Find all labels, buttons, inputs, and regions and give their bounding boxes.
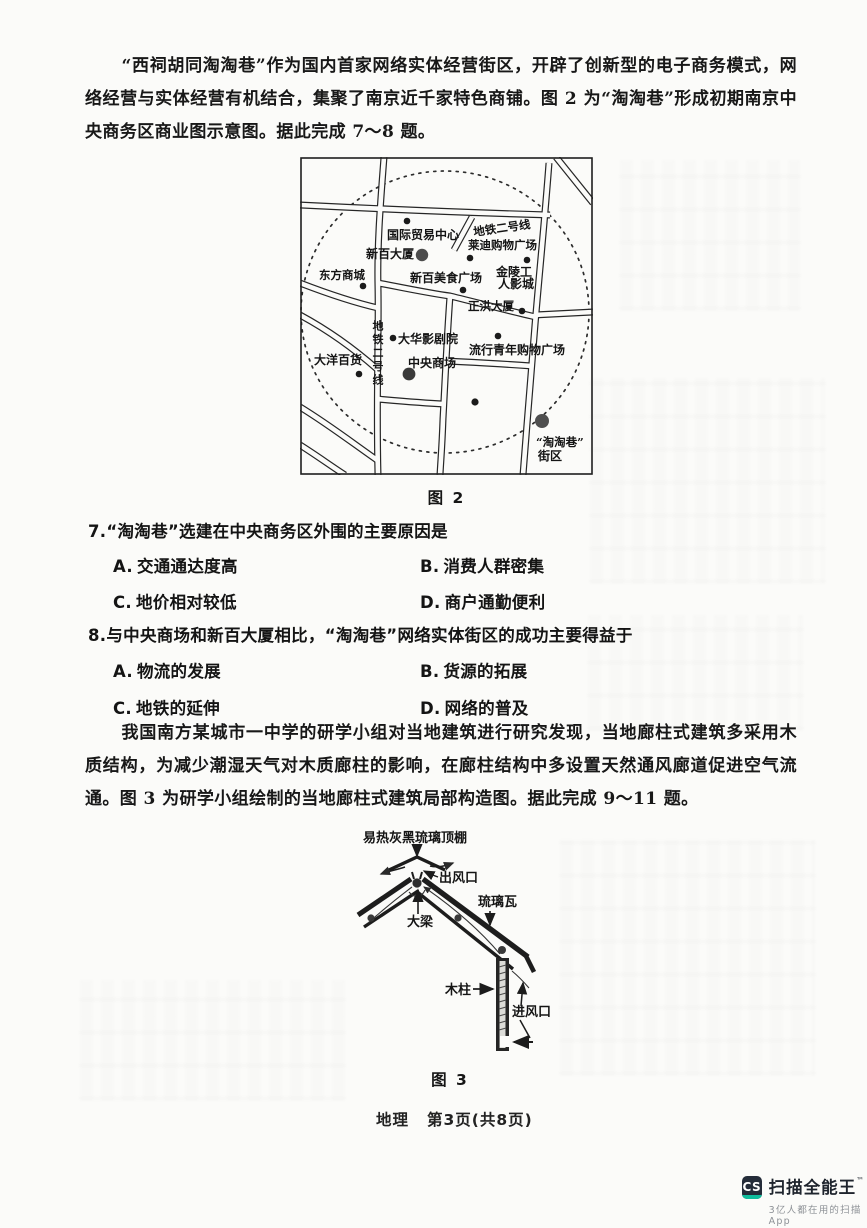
option-label: C.	[113, 699, 132, 718]
option-text: 地价相对较低	[136, 593, 237, 612]
air-outlet-pointer-arrow	[424, 871, 438, 877]
passage-2: 我国南方某城市一中学的研学小组对当地建筑进行研究发现，当地廊柱式建筑多采用木质结…	[85, 717, 797, 816]
air-inlet-pointer-line	[520, 1020, 530, 1038]
label-glazed-tile: 琉璃瓦	[478, 894, 517, 910]
label-taotao-block: 街区	[537, 448, 562, 463]
label-air-outlet: 出风口	[439, 870, 478, 886]
figure2-caption: 图 2	[300, 486, 593, 508]
wood-column	[496, 958, 510, 1051]
scanned-exam-page: { "passage1": "“西祠胡同淘淘巷”作为国内首家网络实体经营街区，开…	[0, 0, 867, 1228]
label-xinbai-tower: 新百大厦	[366, 246, 415, 261]
question-7-options-row-1: A.交通通达度高 B.消费人群密集	[88, 553, 803, 577]
scan-artifact	[80, 980, 345, 1100]
label-main-beam: 大梁	[407, 914, 434, 930]
option-label: B.	[420, 662, 439, 681]
camscanner-text-block: 扫描全能王™ 3亿人都在用的扫描App	[769, 1176, 867, 1227]
label-air-inlet: 进风口	[512, 1005, 551, 1020]
camscanner-title: 扫描全能王	[769, 1178, 857, 1197]
footer-page-number: 第3页(共8页)	[427, 1111, 533, 1129]
label-zhenghong-tower: 正洪大厦	[468, 299, 514, 313]
label-trade-center: 国际贸易中心	[387, 227, 459, 242]
column-air-inlet-gap	[500, 1036, 510, 1047]
option-text: 货源的拓展	[443, 662, 527, 681]
option-label: C.	[113, 593, 132, 612]
air-inlet-pointer-arrow-top	[521, 983, 523, 1006]
main-beam-dot	[412, 878, 421, 887]
passage-1: “西祠胡同淘淘巷”作为国内首家网络实体经营街区，开辟了创新型的电子商务模式，网络…	[85, 50, 797, 149]
option-label: A.	[113, 557, 133, 576]
label-central-mall: 中央商场	[408, 355, 456, 370]
label-wood-column: 木柱	[444, 982, 471, 998]
figure3-caption: 图 3	[325, 1068, 575, 1090]
footer-subject: 地理	[376, 1111, 409, 1129]
option-text: 网络的普及	[445, 699, 529, 718]
label-dongfang-mall: 东方商城	[319, 268, 365, 282]
label-metro-line-2-left: 地铁二号线	[369, 320, 385, 410]
figure2-map: 国际贸易中心 地铁二号线 莱迪购物广场 新百大厦 东方商城 新百美食广场 金陵工…	[300, 157, 593, 475]
label-dahua-theatre: 大华影剧院	[398, 331, 458, 346]
question-8-number: 8.	[88, 626, 106, 645]
label-popular-youth-plaza: 流行青年购物广场	[469, 342, 565, 357]
scan-artifact	[560, 840, 815, 1075]
label-laidi-plaza: 莱迪购物广场	[468, 238, 537, 252]
option-text: 交通通达度高	[137, 557, 238, 576]
question-7-stem: 7.“淘淘巷”选建在中央商务区外围的主要原因是	[88, 518, 803, 542]
label-taotao-lane: “淘淘巷”	[536, 435, 584, 449]
option-label: B.	[420, 557, 439, 576]
option-text: 商户通勤便利	[445, 593, 546, 612]
question-8: 8.与中央商场和新百大厦相比，“淘淘巷”网络实体街区的成功主要得益于 A.物流的…	[88, 622, 803, 719]
option-label: D.	[420, 593, 441, 612]
label-dayang-dept-store: 大洋百货	[314, 352, 362, 367]
camscanner-icon-strip	[742, 1195, 762, 1199]
question-8-options-row-1: A.物流的发展 B.货源的拓展	[88, 658, 803, 682]
option-label: D.	[420, 699, 441, 718]
question-7: 7.“淘淘巷”选建在中央商务区外围的主要原因是 A.交通通达度高 B.消费人群密…	[88, 518, 803, 613]
option-label: A.	[113, 662, 133, 681]
page-footer: 地理第3页(共8页)	[376, 1108, 533, 1130]
label-jinling-cinema-2: 人影城	[498, 276, 534, 291]
scan-artifact	[620, 160, 800, 310]
question-8-stem: 8.与中央商场和新百大厦相比，“淘淘巷”网络实体街区的成功主要得益于	[88, 622, 803, 646]
option-text: 地铁的延伸	[136, 699, 220, 718]
option-text: 消费人群密集	[443, 557, 544, 576]
camscanner-subtitle: 3亿人都在用的扫描App	[769, 1202, 867, 1227]
label-metro-line-2-top: 地铁二号线	[472, 217, 531, 239]
camscanner-watermark: CS 扫描全能王™ 3亿人都在用的扫描App	[742, 1176, 867, 1227]
question-8-options-row-2: C.地铁的延伸 D.网络的普及	[88, 695, 803, 719]
question-7-number: 7.	[88, 522, 106, 541]
trademark-symbol: ™	[856, 1176, 864, 1185]
question-7-options-row-2: C.地价相对较低 D.商户通勤便利	[88, 589, 803, 613]
figure3-diagram: 易热灰黑琉璃顶棚	[325, 826, 575, 1066]
label-roof-canopy: 易热灰黑琉璃顶棚	[363, 830, 467, 846]
camscanner-icon: CS	[742, 1176, 762, 1199]
label-xinbai-food-plaza: 新百美食广场	[410, 270, 482, 285]
option-text: 物流的发展	[137, 662, 221, 681]
